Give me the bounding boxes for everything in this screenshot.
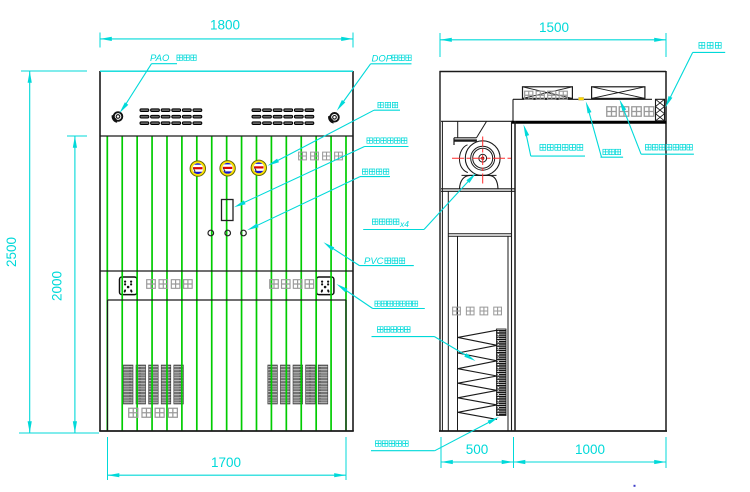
svg-text:1000: 1000: [575, 442, 605, 457]
svg-text:x4: x4: [399, 219, 409, 229]
svg-text:DOP: DOP: [372, 53, 393, 64]
svg-text:500: 500: [466, 442, 489, 457]
svg-text:2500: 2500: [4, 237, 19, 267]
svg-text:2000: 2000: [50, 271, 65, 301]
svg-text:1500: 1500: [539, 20, 569, 35]
svg-text:1700: 1700: [211, 455, 241, 470]
svg-text:1800: 1800: [210, 18, 240, 33]
svg-text:PAO: PAO: [150, 53, 170, 64]
